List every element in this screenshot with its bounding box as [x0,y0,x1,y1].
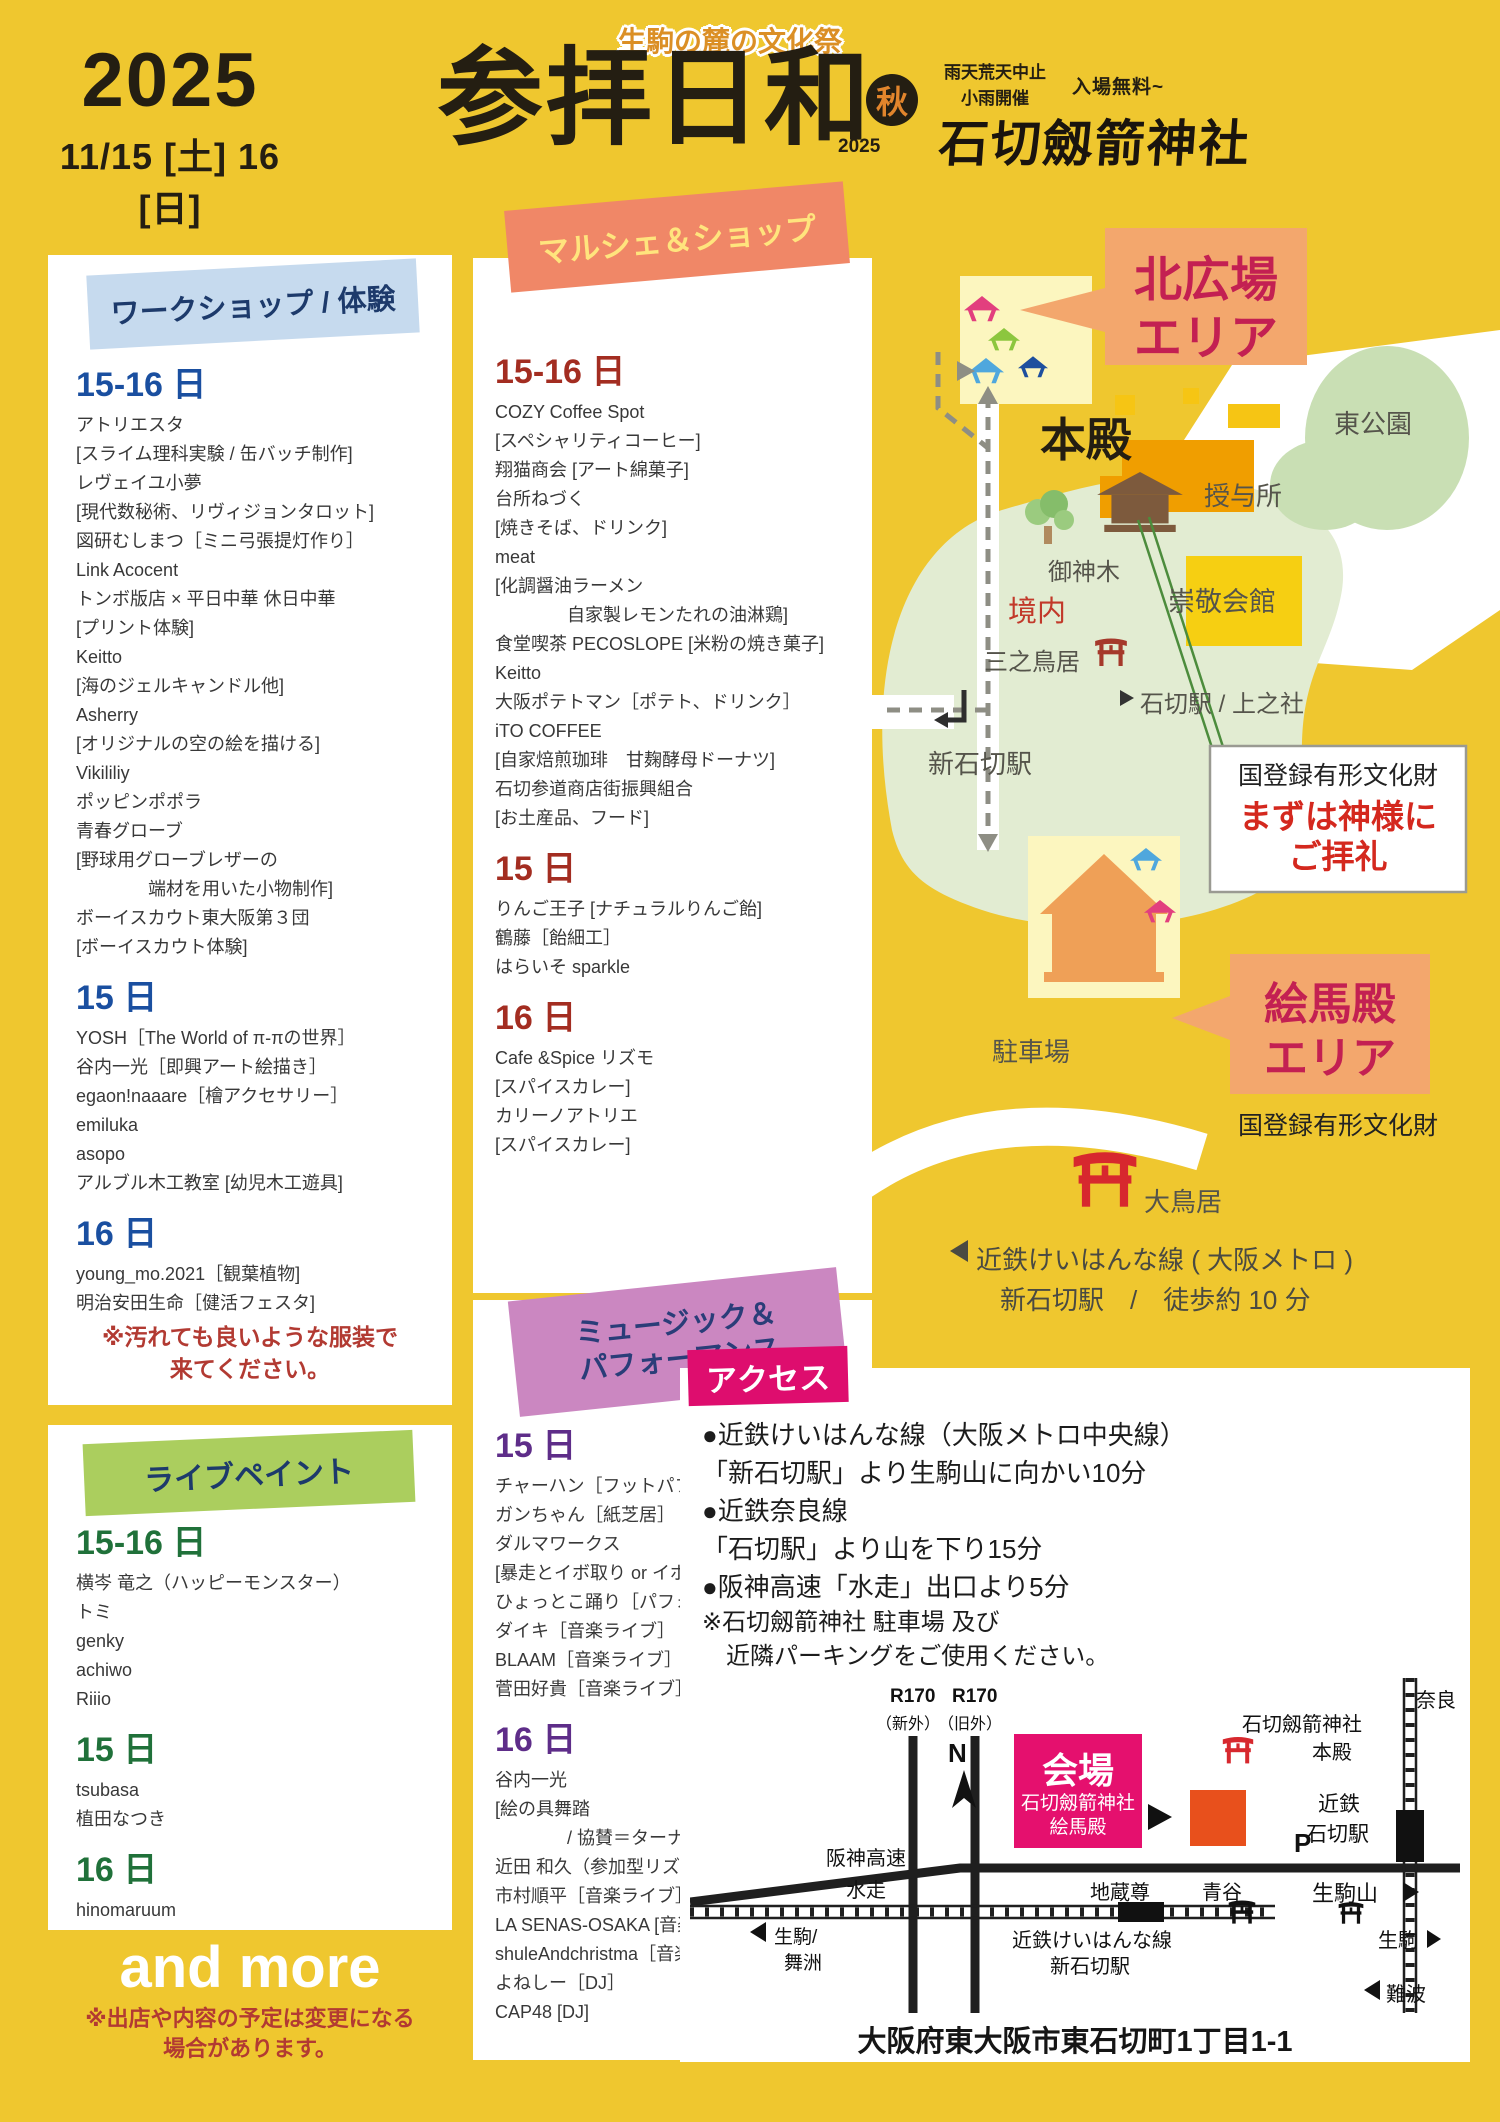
date-heading: 16 日 [76,1852,351,1888]
livepaint-panel: ライブペイント 15-16 日横岑 竜之（ハッピーモンスター）トミgenkyac… [48,1425,452,1930]
lineup-item: 石切参道商店街振興組合 [495,775,824,804]
lineup-item: 横岑 竜之（ハッピーモンスター） [76,1569,351,1598]
lineup-item: ●阪神高速「水走」出口より5分 [702,1568,1186,1606]
green-area [1270,440,1380,530]
aotani-label: 青谷 [1202,1876,1242,1905]
keihanna-label-1: 近鉄けいはんな線 [1012,1924,1172,1953]
lineup-item: 端材を用いた小物制作] [76,875,374,904]
r170-old-label: R170 [952,1686,997,1708]
date-heading: 15 日 [76,1732,351,1768]
honden-label: 本殿 [1040,404,1132,470]
date-heading: 15-16 日 [76,1525,351,1561]
maishima-arrow [750,1922,766,1942]
lineup-item: hinomaruum [76,1896,351,1925]
lineup-item: [化調醤油ラーメン [495,572,824,601]
ikoma-maishima-2: 舞洲 [784,1948,822,1975]
shrine-label-1: 石切劔箭神社 [1242,1708,1362,1737]
event-dates: 11/15 [土] 16 [日] [25,128,315,232]
emaden-area-label-2: エリア [1230,1022,1430,1086]
kaijo-label: 会場 [1014,1742,1142,1794]
date-heading: 15-16 日 [495,354,824,390]
event-title-year: 2025 [838,136,880,158]
emaden-area-pointer [1172,996,1230,1040]
rail-note-arrow [950,1240,968,1262]
date-heading: 15 日 [76,980,374,1016]
north-plaza-box [960,276,1092,404]
keidai-label: 境内 [1008,588,1066,630]
admission-note: 入場無料~ [1072,72,1164,99]
lineup-item: ボーイスカウト東大阪第３団 [76,904,374,933]
lineup-item: 図研むしまつ［ミニ弓張提灯作り］ [76,527,374,556]
kaijo-arrow [1148,1804,1172,1830]
lineup-item: 大阪ポテトマン［ポテト、ドリンク］ [495,688,824,717]
lineup-item: asopo [76,1140,374,1169]
lineup-item: カリーノアトリエ [495,1102,824,1131]
lineup-item: Link Acocent [76,556,374,585]
nara-label: 奈良 [1416,1684,1456,1713]
lineup-item: meat [495,543,824,572]
shrine-label-2: 本殿 [1312,1736,1352,1765]
lineup-item: 明治安田生命［健活フェスタ] [76,1289,374,1318]
lineup-item: [プリント体験] [76,614,374,643]
workshop-list: 15-16 日アトリエスタ[スライム理科実験 / 缶バッチ制作]レヴェイユ小夢[… [76,367,374,1318]
r170-new-sub: （新外） [876,1710,940,1734]
lineup-item: [スライム理科実験 / 缶バッチ制作] [76,440,374,469]
street-map: R170 （新外） R170 （旧外） 奈良 石切劔箭神社 本殿 N 会場 石切… [690,1678,1460,2013]
parking-p-label: P [1294,1828,1311,1859]
lineup-item: アトリエスタ [76,411,374,440]
lineup-item: YOSH［The World of π-πの世界］ [76,1024,374,1053]
lineup-item: COZY Coffee Spot [495,398,824,427]
workshop-panel: ワークショップ / 体験 15-16 日アトリエスタ[スライム理科実験 / 缶バ… [48,255,452,1405]
r170-old-sub: （旧外） [938,1710,1002,1734]
torii-icon [1223,1737,1253,1763]
sukeikaikan-label: 崇敬会館 [1168,580,1276,619]
lineup-item: ●近鉄けいはんな線（大阪メトロ中央線） [702,1416,1186,1454]
lineup-item: 翔猫商会 [アート綿菓子] [495,456,824,485]
lineup-item: Riiio [76,1685,351,1714]
lineup-item: アルブル木工教室 [幼児木工遊具] [76,1169,374,1198]
lineup-item: 「新石切駅」より生駒山に向かい10分 [702,1454,1186,1492]
and-more-text: and more [48,1934,452,2001]
lineup-item: 植田なつき [76,1805,351,1834]
keihanna-railway [690,1902,1275,1922]
access-panel: アクセス ●近鉄けいはんな線（大阪メトロ中央線）「新石切駅」より生駒山に向かい1… [680,1368,1470,2062]
lineup-item: [現代数秘術、リヴィジョンタロット] [76,498,374,527]
lineup-item: 「石切駅」より山を下り15分 [702,1530,1186,1568]
lineup-item: emiluka [76,1111,374,1140]
lineup-item: [スペシャリティコーヒー] [495,427,824,456]
building [1183,388,1199,404]
lineup-item: Keitto [495,659,824,688]
lineup-item: [自家焙煎珈琲 甘麹酵母ドーナツ] [495,746,824,775]
lineup-item: [焼きそば、ドリンク] [495,514,824,543]
lineup-item: りんご王子 [ナチュラルりんご飴] [495,895,824,924]
poster: 2025 11/15 [土] 16 [日] 生駒の麓の文化祭 参拝日和 2025… [0,0,1500,2122]
lineup-item: レヴェイユ小夢 [76,469,374,498]
kita-area-label-2: エリア [1105,298,1307,368]
rail-note-line1: 近鉄けいはんな線 ( 大阪メトロ ) [976,1240,1353,1277]
r170-new-label: R170 [890,1686,935,1708]
juyosho-label: 授与所 [1204,476,1282,513]
workshop-note-line1: ※汚れても良いような服装で [48,1321,452,1353]
ikoma-arrow [1427,1930,1441,1948]
date-heading: 16 日 [495,1000,824,1036]
shin-ishikiri-label: 新石切駅 [928,744,1032,781]
lineup-item: achiwo [76,1656,351,1685]
date-heading: 15 日 [495,851,824,887]
marche-panel: マルシェ＆ショップ 15-16 日COZY Coffee Spot[スペシャリテ… [473,258,872,1293]
lineup-item: 谷内一光［即興アート絵描き］ [76,1053,374,1082]
lineup-item: [スパイスカレー] [495,1131,824,1160]
date-block: 2025 11/15 [土] 16 [日] [25,42,315,232]
shrine-logo: 石切劔箭神社 [897,104,1292,176]
lineup-item: [お土産品、フード] [495,804,824,833]
hanshin-label-2: 水走 [846,1874,886,1903]
access-list: ●近鉄けいはんな線（大阪メトロ中央線）「新石切駅」より生駒山に向かい10分●近鉄… [702,1416,1186,1674]
lineup-item: genky [76,1627,351,1656]
kaijo-sub1: 石切劔箭神社 [1014,1788,1142,1815]
access-title-band: アクセス [687,1346,848,1406]
sannotorii-label: 三之鳥居 [984,642,1080,677]
lineup-item: 青春グローブ [76,817,374,846]
lineup-item: iTO COFFEE [495,717,824,746]
otorii-label: 大鳥居 [1144,1182,1222,1219]
nara-line-railway [1396,1678,1424,2013]
east-park-label: 東公園 [1334,404,1412,441]
weather-line1: 雨天荒天中止 [933,60,1057,86]
marche-title-band: マルシェ＆ショップ [504,181,850,292]
date-heading: 16 日 [76,1216,374,1252]
parking-label: 駐車場 [992,1032,1070,1069]
event-year: 2025 [25,42,315,120]
ikomayama-label: 生駒山 [1312,1876,1378,1908]
livepaint-title-band: ライブペイント [83,1430,416,1516]
kamisha-label: 石切駅 / 上之社 [1140,684,1304,719]
kaijo-sub2: 絵馬殿 [1014,1812,1142,1839]
lineup-item: 食堂喫茶 PECOSLOPE [米粉の焼き菓子] [495,630,824,659]
marche-list: 15-16 日COZY Coffee Spot[スペシャリティコーヒー]翔猫商会… [495,354,824,1160]
kintetsu-label-1: 近鉄 [1318,1788,1360,1818]
livepaint-list: 15-16 日横岑 竜之（ハッピーモンスター）トミgenkyachiwoRiii… [76,1525,351,1925]
namba-arrow [1364,1980,1380,2000]
ikoma-maishima-1: 生駒/ [774,1922,817,1949]
north-label: N [948,1738,967,1769]
lineup-item: [野球用グローブレザーの [76,846,374,875]
shrine-map: 北広場 エリア 東公園 本殿 授与所 御神木 境内 崇敬会館 三之鳥居 石切駅 … [872,190,1500,1330]
lineup-item: Vikililiy [76,759,374,788]
bottom-note-line1: ※出店や内容の予定は変更になる [20,2004,480,2034]
lineup-item: [オリジナルの空の絵を描ける] [76,730,374,759]
workshop-title-band: ワークショップ / 体験 [86,258,419,349]
otorii-icon [1074,1152,1137,1206]
kintetsu-label-2: 石切駅 [1306,1818,1369,1848]
jizoson-label: 地蔵尊 [1090,1876,1150,1905]
lineup-item: Asherry [76,701,374,730]
lineup-item: tsubasa [76,1776,351,1805]
event-title: 参拝日和 [420,40,890,158]
lineup-item: Keitto [76,643,374,672]
lineup-item: egaon!naaare［檜アクセサリー］ [76,1082,374,1111]
lineup-item: トミ [76,1598,351,1627]
lineup-item: [スパイスカレー] [495,1073,824,1102]
date-heading: 15-16 日 [76,367,374,403]
lineup-item: 台所ねづく [495,485,824,514]
lineup-item: 近隣パーキングをご使用ください。 [702,1640,1186,1674]
lineup-item: young_mo.2021［観葉植物] [76,1260,374,1289]
heritage-label-2: 国登録有形文化財 [1210,1106,1466,1142]
bottom-note-line2: 場合があります。 [20,2034,480,2064]
lineup-item: ●近鉄奈良線 [702,1492,1186,1530]
ikoma-label: 生駒 [1378,1924,1418,1953]
lineup-item: [海のジェルキャンドル他] [76,672,374,701]
namba-label: 難波 [1386,1978,1426,2007]
venue-marker [1190,1790,1246,1846]
address: 大阪府東大阪市東石切町1丁目1-1 [680,2018,1470,2060]
workshop-note-line2: 来てください。 [48,1353,452,1385]
heritage-label-1: 国登録有形文化財 [1210,756,1466,792]
lineup-item: はらいそ sparkle [495,953,824,982]
worship-note-2: ご拝礼 [1210,830,1466,878]
lineup-item: ※石切劔箭神社 駐車場 及び [702,1606,1186,1640]
lineup-item: 自家製レモンたれの油淋鶏] [495,601,824,630]
keihanna-label-2: 新石切駅 [1050,1950,1130,1979]
building [1228,404,1280,428]
rail-note-line2: 新石切駅 / 徒歩約 10 分 [1000,1280,1311,1317]
lineup-item: ポッピンポポラ [76,788,374,817]
hanshin-label-1: 阪神高速 [826,1842,906,1871]
lineup-item: トンボ版店 × 平日中華 休日中華 [76,585,374,614]
lineup-item: [ボーイスカウト体験] [76,933,374,962]
goshinboku-label: 御神木 [1048,552,1120,587]
lineup-item: 鶴藤［飴細工］ [495,924,824,953]
lineup-item: Cafe &Spice リズモ [495,1044,824,1073]
